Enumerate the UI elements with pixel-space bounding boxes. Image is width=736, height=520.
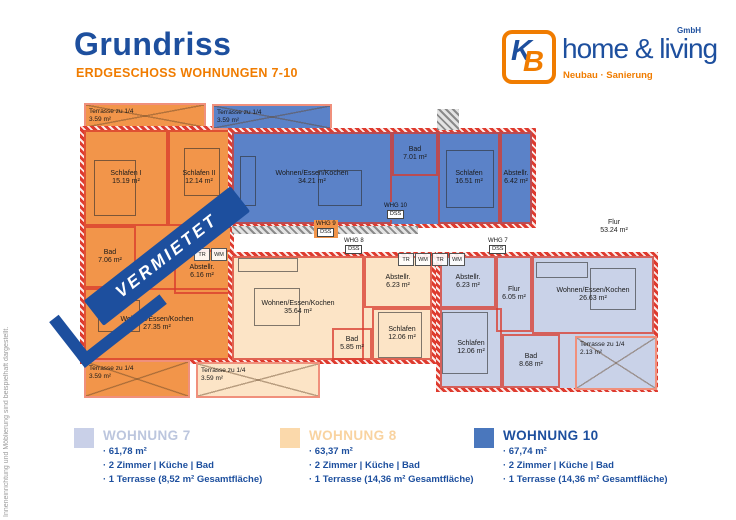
tag-dss: DSS <box>387 210 404 219</box>
page-subtitle: ERDGESCHOSS WOHNUNGEN 7-10 <box>76 66 298 80</box>
terrace-whg10: Terrasse zu 1/43.59 m² <box>212 104 332 130</box>
room-area: 2.13 m² <box>580 349 652 357</box>
tag-line: WHG 9 <box>316 221 336 228</box>
room-bad-whg10: Bad7.01 m² <box>392 132 438 176</box>
legend-line: · 2 Zimmer | Küche | Bad <box>103 460 262 471</box>
side-disclaimer-note: Inneneinrichtung und Möblierung sind bei… <box>3 283 10 517</box>
furniture-table <box>254 288 300 326</box>
tag-whg8: WHG 8 DSS <box>342 237 366 255</box>
tag-whg10: WHG 10 DSS <box>382 202 409 220</box>
room-label: Bad <box>519 353 543 361</box>
legend-item-wohnung10: WOHNUNG 10 · 67,74 m² · 2 Zimmer | Küche… <box>474 428 668 485</box>
legend-line: · 63,37 m² <box>309 446 474 457</box>
washer-icon: WM <box>211 248 227 261</box>
room-area: 6.16 m² <box>190 272 215 280</box>
page: Grundriss ERDGESCHOSS WOHNUNGEN 7-10 K B… <box>0 0 736 520</box>
legend-title: WOHNUNG 10 <box>503 428 668 443</box>
tag-line: WHG 10 <box>384 203 407 210</box>
furniture-bed <box>94 160 136 216</box>
furniture-bed <box>446 150 494 208</box>
legend-item-wohnung8: WOHNUNG 8 · 63,37 m² · 2 Zimmer | Küche … <box>280 428 474 485</box>
legend-swatch-wohnung7 <box>74 428 94 448</box>
room-label: Bad <box>403 146 427 154</box>
room-abstell-whg10: Abstellr.6.42 m² <box>500 132 532 224</box>
furniture-bed <box>442 312 488 374</box>
legend-line: · 1 Terrasse (14,36 m² Gesamtfläche) <box>309 474 474 485</box>
room-area: 3.59 m² <box>217 117 327 125</box>
legend-swatch-wohnung8 <box>280 428 300 448</box>
room-bad-whg8: Bad5.85 m² <box>332 328 372 360</box>
terrace-whg8: Terrasse zu 1/43.59 m² <box>196 362 320 398</box>
tag-line: WHG 8 <box>344 238 364 245</box>
room-area: 7.06 m² <box>98 257 122 265</box>
legend-line: · 67,74 m² <box>503 446 668 457</box>
appliance-tr-wm-whg7: TR WM <box>432 253 466 266</box>
logo-company-name: home & living <box>562 33 717 65</box>
room-label: Bad <box>98 249 122 257</box>
logo-gmbh: GmbH <box>677 26 701 35</box>
hatch-block <box>437 109 459 130</box>
furniture-bed <box>378 312 422 358</box>
room-label: Bad <box>340 336 364 344</box>
room-flur-whg7: Flur6.05 m² <box>496 256 532 332</box>
room-label: Terrasse zu 1/4 <box>89 108 201 116</box>
furniture-kitchen <box>238 258 298 272</box>
legend-item-wohnung7: WOHNUNG 7 · 61,78 m² · 2 Zimmer | Küche … <box>74 428 262 485</box>
terrace-whg9-bottom: Terrasse zu 1/43.59 m² <box>84 360 190 398</box>
room-area: 8.68 m² <box>519 361 543 369</box>
dryer-icon: TR <box>398 253 414 266</box>
legend-line: · 1 Terrasse (14,36 m² Gesamtfläche) <box>503 474 668 485</box>
legend-line: · 2 Zimmer | Küche | Bad <box>503 460 668 471</box>
appliance-tr-wm-whg8: TR WM <box>398 253 432 266</box>
tag-whg7: WHG 7 DSS <box>486 237 510 255</box>
tag-dss: DSS <box>317 228 334 237</box>
room-label: Abstellr. <box>456 274 481 282</box>
room-area: 6.23 m² <box>456 282 481 290</box>
logo-letter-b: B <box>523 46 544 79</box>
tag-whg9: WHG 9 DSS <box>314 220 338 238</box>
legend-swatch-wohnung10 <box>474 428 494 448</box>
tag-dss: DSS <box>489 245 506 254</box>
room-area: 53.24 m² <box>586 227 642 235</box>
room-area: 7.01 m² <box>403 154 427 162</box>
room-area: 5.85 m² <box>340 344 364 352</box>
common-hall-label: Flur 53.24 m² <box>586 219 642 236</box>
tag-line: WHG 7 <box>488 238 508 245</box>
room-wohnen-whg10: Wohnen/Essen/Kochen34.21 m² <box>232 132 392 224</box>
terrace-whg7: Terrasse zu 1/42.13 m² <box>575 336 657 390</box>
room-label: Abstellr. <box>386 274 411 282</box>
room-label: Terrasse zu 1/4 <box>89 365 185 373</box>
room-area: 3.59 m² <box>201 375 315 383</box>
room-label: Abstellr. <box>504 170 529 178</box>
room-label: Terrasse zu 1/4 <box>201 367 315 375</box>
tag-dss: DSS <box>345 245 362 254</box>
furniture-sofa <box>240 156 256 206</box>
furniture-table <box>318 170 362 206</box>
furniture-bed <box>184 148 220 196</box>
room-label: Abstellr. <box>190 264 215 272</box>
room-label: Flur <box>502 286 526 294</box>
room-area: 3.59 m² <box>89 116 201 124</box>
washer-icon: WM <box>449 253 465 266</box>
legend-line: · 2 Zimmer | Küche | Bad <box>309 460 474 471</box>
room-bad-whg7: Bad8.68 m² <box>502 334 560 388</box>
washer-icon: WM <box>415 253 431 266</box>
room-area: 6.42 m² <box>504 178 529 186</box>
logo-tagline: Neubau · Sanierung <box>563 70 653 81</box>
legend-title: WOHNUNG 8 <box>309 428 474 443</box>
room-area: 6.23 m² <box>386 282 411 290</box>
page-title: Grundriss <box>74 26 231 63</box>
room-label: Flur <box>586 219 642 227</box>
kb-logo-icon: K B <box>502 30 556 84</box>
furniture-sofa <box>536 262 588 278</box>
room-area: 6.05 m² <box>502 294 526 302</box>
room-label: Terrasse zu 1/4 <box>580 341 652 349</box>
dryer-icon: TR <box>432 253 448 266</box>
legend-line: · 61,78 m² <box>103 446 262 457</box>
legend-title: WOHNUNG 7 <box>103 428 262 443</box>
room-area: 3.59 m² <box>89 373 185 381</box>
room-label: Terrasse zu 1/4 <box>217 109 327 117</box>
furniture-table <box>590 268 636 310</box>
legend-line: · 1 Terrasse (8,52 m² Gesamtfläche) <box>103 474 262 485</box>
